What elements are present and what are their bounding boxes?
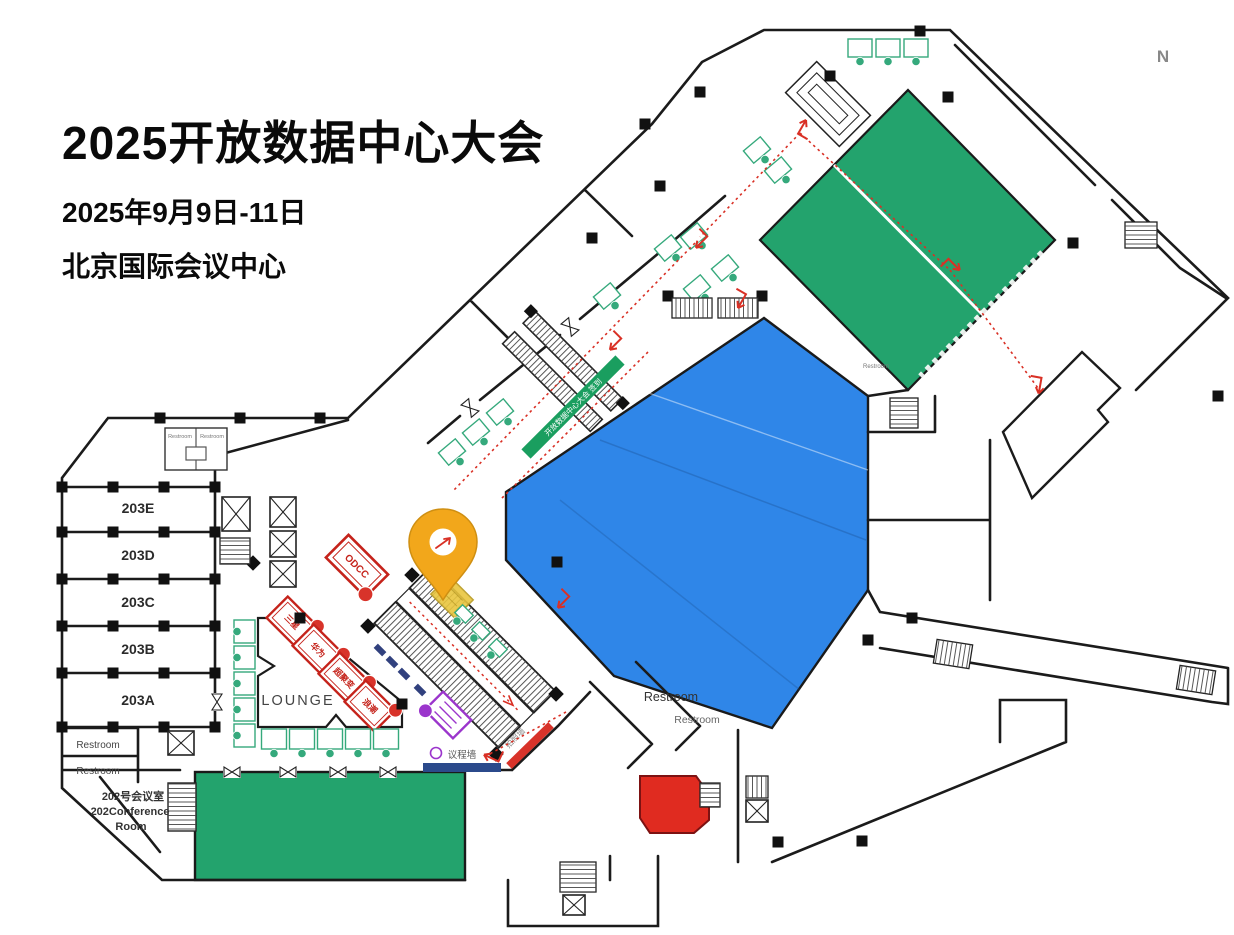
elevator-icon — [222, 497, 250, 531]
agenda-wall-label: 议程墙 — [448, 749, 477, 761]
room-203c-label: 203C — [121, 594, 154, 610]
room-202-label-en2: Room — [115, 821, 146, 833]
room-203d-label: 203D — [121, 547, 154, 563]
column — [1068, 238, 1079, 249]
column — [235, 413, 246, 424]
booth-small — [233, 698, 255, 721]
route-arrow-icon — [795, 118, 816, 139]
column — [108, 621, 119, 632]
booth-small — [904, 39, 928, 66]
column — [159, 668, 170, 679]
purple-marker — [431, 748, 442, 759]
column — [907, 613, 918, 624]
booth-badge — [856, 57, 864, 65]
booth-small — [764, 157, 797, 190]
stairs-icon — [220, 538, 250, 564]
event-date: 2025年9月9日-11日 — [62, 191, 544, 231]
stairs-icon — [746, 776, 768, 798]
restroom-label: Restroom — [76, 740, 119, 751]
stairs-icon — [700, 783, 720, 807]
column — [397, 699, 408, 710]
column — [210, 574, 221, 585]
column — [57, 722, 68, 733]
floorplan-stage: 2025开放数据中心大会 2025年9月9日-11日 北京国际会议中心 — [0, 0, 1234, 930]
booth-badge — [298, 749, 306, 757]
column — [915, 26, 926, 37]
booth-small — [486, 399, 519, 432]
restroom-label: Restroom — [76, 766, 119, 777]
elevator-icon — [270, 561, 296, 587]
booth-badge — [326, 749, 334, 757]
stairs-icon — [560, 862, 596, 892]
column — [640, 119, 651, 130]
door-icon — [460, 397, 481, 419]
compass-north: N — [1157, 47, 1169, 66]
booth-small — [233, 724, 255, 747]
column — [108, 722, 119, 733]
column — [57, 527, 68, 538]
restroom-label: Restroom — [200, 434, 224, 440]
column — [57, 621, 68, 632]
restroom-top-block: Restroom Restroom — [165, 428, 227, 470]
column — [159, 574, 170, 585]
booth-small — [233, 672, 255, 695]
booth-small — [233, 646, 255, 669]
booth-small — [290, 729, 315, 758]
door-icon — [560, 316, 581, 338]
restroom-label: Restroom — [863, 364, 889, 370]
column — [552, 557, 563, 568]
column — [773, 837, 784, 848]
column — [159, 482, 170, 493]
booth-badge — [912, 57, 920, 65]
booth-small — [876, 39, 900, 66]
room-203a-label: 203A — [121, 692, 154, 708]
stairs-icon — [1125, 222, 1157, 248]
door-icon — [279, 766, 297, 778]
restroom-label: Restroom — [644, 690, 698, 704]
green-hall-lower — [195, 772, 465, 880]
door-icon — [211, 693, 223, 711]
column — [57, 574, 68, 585]
column — [108, 668, 119, 679]
stairs-icon — [890, 398, 918, 428]
booth-small — [593, 283, 626, 316]
elevator-icon — [746, 800, 768, 822]
door-icon — [223, 766, 241, 778]
column — [315, 413, 326, 424]
room-202-label-en1: 202Conference — [91, 806, 170, 818]
booth-badge — [884, 57, 892, 65]
column — [857, 836, 868, 847]
column — [210, 482, 221, 493]
column — [108, 527, 119, 538]
column — [1213, 391, 1224, 402]
column — [57, 668, 68, 679]
booth-small — [680, 223, 713, 256]
column — [159, 527, 170, 538]
column — [210, 527, 221, 538]
restroom-label: Restroom — [674, 714, 720, 726]
stairs-icon — [933, 639, 972, 668]
column — [57, 482, 68, 493]
title-block: 2025开放数据中心大会 2025年9月9日-11日 北京国际会议中心 — [62, 118, 544, 285]
green-hall-upper — [760, 90, 1055, 390]
stair-sign-tag — [386, 656, 399, 669]
booth-small — [711, 255, 744, 288]
column — [695, 87, 706, 98]
column — [655, 181, 666, 192]
elevator-icon — [270, 531, 296, 557]
stair-sign-tag — [374, 644, 387, 657]
room-203b-label: 203B — [121, 641, 154, 657]
booth-small — [318, 729, 343, 758]
elevator-icon — [563, 895, 585, 915]
door-icon — [329, 766, 347, 778]
right-wing-room — [1003, 352, 1120, 498]
page-title: 2025开放数据中心大会 — [62, 118, 544, 169]
door-icon — [379, 766, 397, 778]
column — [210, 621, 221, 632]
column — [108, 482, 119, 493]
booth-small — [848, 39, 872, 66]
booth-odcc: ODCC — [322, 535, 392, 605]
column — [295, 613, 306, 624]
stairs-icon — [1176, 665, 1215, 694]
stairs-202 — [168, 783, 196, 831]
event-venue: 北京国际会议中心 — [62, 245, 544, 285]
booth-badge — [270, 749, 278, 757]
column — [943, 92, 954, 103]
column — [155, 413, 166, 424]
stair-sign-tag — [398, 668, 411, 681]
column — [825, 71, 836, 82]
booth-small — [262, 729, 287, 758]
room-202-label-cn: 202号会议室 — [102, 789, 164, 803]
column — [210, 668, 221, 679]
elevator-icon — [168, 731, 194, 755]
room-203e-label: 203E — [122, 500, 155, 516]
column — [108, 574, 119, 585]
column — [210, 722, 221, 733]
column — [863, 635, 874, 646]
lounge-label: LOUNGE — [261, 693, 334, 709]
booth-small — [438, 439, 471, 472]
stairs-icon — [672, 298, 712, 318]
restroom-label: Restroom — [168, 434, 192, 440]
column — [159, 621, 170, 632]
stair-sign-tag — [414, 684, 427, 697]
elevator-icon — [270, 497, 296, 527]
booth-small — [233, 620, 255, 643]
booth-badge — [382, 749, 390, 757]
booth-badge — [354, 749, 362, 757]
column — [587, 233, 598, 244]
red-room — [640, 776, 709, 833]
booth-small — [462, 419, 495, 452]
booth-small — [374, 729, 399, 758]
booth-small — [346, 729, 371, 758]
